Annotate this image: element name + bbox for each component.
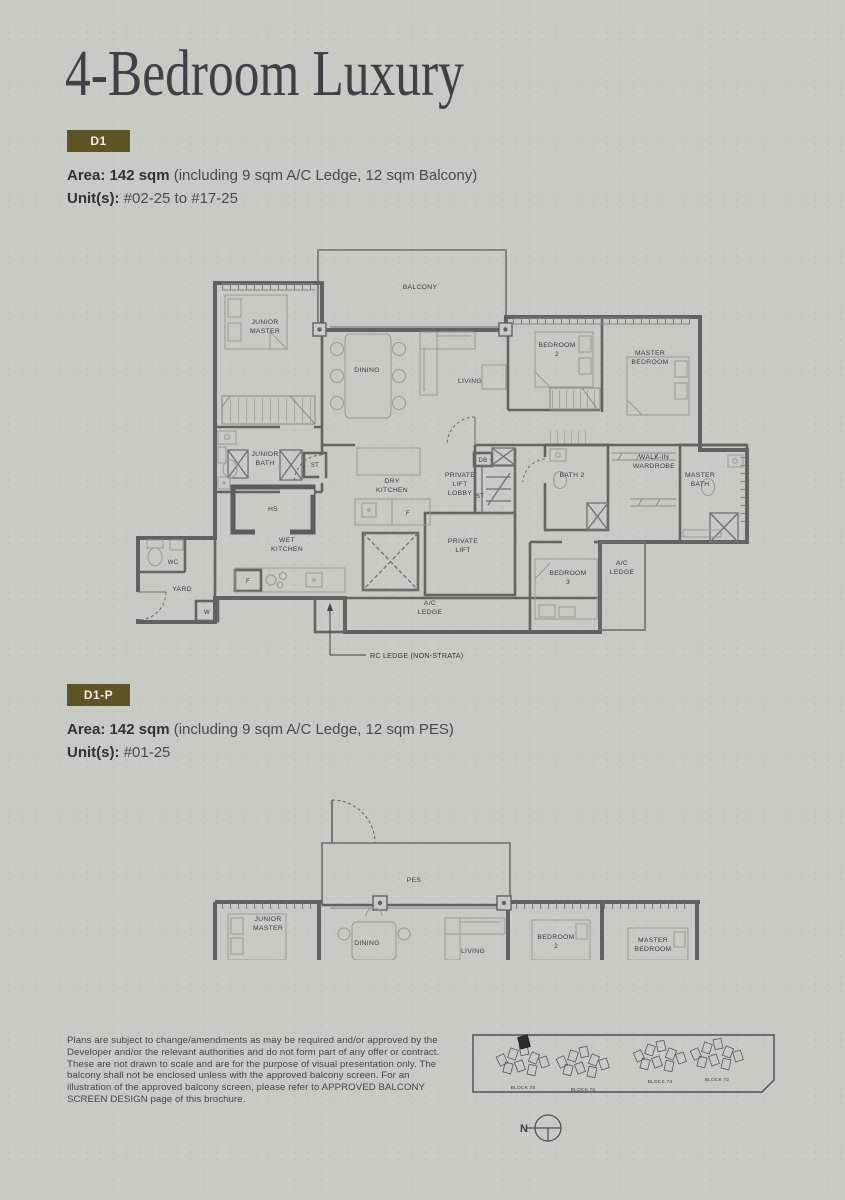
furniture bbox=[228, 908, 688, 960]
block-unit bbox=[587, 1066, 597, 1077]
block-unit bbox=[599, 1058, 610, 1070]
rc-ledge-label: RC LEDGE (NON-STRATA) bbox=[370, 651, 463, 660]
units-line: Unit(s): #01-25 bbox=[67, 741, 454, 764]
block-unit bbox=[721, 1058, 731, 1069]
room-label: PRIVATELIFTLOBBY bbox=[445, 472, 475, 497]
room-label: PRIVATELIFT bbox=[448, 538, 478, 554]
block-unit bbox=[697, 1056, 707, 1068]
block-unit bbox=[652, 1056, 663, 1068]
unit-meta-d1: Area: 142 sqm (including 9 sqm A/C Ledge… bbox=[67, 164, 477, 210]
block-cluster: BLOCK 74 bbox=[633, 1040, 686, 1085]
block-unit bbox=[709, 1054, 720, 1066]
room-label: ST bbox=[476, 494, 484, 500]
unit-meta-d1p: Area: 142 sqm (including 9 sqm A/C Ledge… bbox=[67, 718, 454, 764]
floorplan-d1: RC LEDGE (NON-STRATA) BALCONYJUNIORMASTE… bbox=[130, 237, 750, 667]
room-label: ST bbox=[311, 463, 319, 469]
block-unit bbox=[496, 1054, 507, 1066]
north-label: N bbox=[520, 1123, 528, 1135]
block-cluster: BLOCK 76 bbox=[556, 1046, 609, 1093]
block-unit bbox=[588, 1054, 599, 1066]
room-label: DINING bbox=[354, 940, 380, 947]
block-unit bbox=[503, 1062, 513, 1074]
brochure-page: 4-Bedroom Luxury D1 Area: 142 sqm (inclu… bbox=[0, 0, 845, 1200]
pes-gate bbox=[332, 800, 375, 843]
room-label: DRYKITCHEN bbox=[376, 478, 408, 494]
block-unit bbox=[563, 1064, 573, 1076]
block-unit bbox=[539, 1056, 550, 1068]
room-label: BEDROOM2 bbox=[538, 342, 575, 358]
door-arcs bbox=[138, 417, 545, 620]
floorplan-d1p: PESJUNIORMASTERDININGLIVINGBEDROOM2MASTE… bbox=[130, 790, 750, 960]
area-line: Area: 142 sqm (including 9 sqm A/C Ledge… bbox=[67, 718, 454, 741]
pes-outline bbox=[322, 843, 510, 905]
unit-type-badge-d1p: D1-P bbox=[67, 684, 130, 706]
room-label: LIVING bbox=[461, 948, 485, 955]
room-label: JUNIORMASTER bbox=[253, 916, 283, 932]
block-cluster: BLOCK 72 bbox=[690, 1038, 743, 1083]
room-label: DINING bbox=[354, 367, 380, 374]
room-label: JUNIORBATH bbox=[251, 451, 278, 467]
room-label: YARD bbox=[172, 586, 192, 593]
room-label: MASTERBEDROOM bbox=[634, 937, 671, 953]
block-label: BLOCK 74 bbox=[648, 1079, 673, 1085]
block-unit bbox=[515, 1060, 526, 1072]
outer-walls bbox=[215, 902, 700, 960]
room-label: A/CLEDGE bbox=[418, 600, 443, 616]
unit-type-badge-d1: D1 bbox=[67, 130, 130, 152]
north-indicator: N bbox=[512, 1108, 582, 1148]
block-unit bbox=[579, 1046, 589, 1057]
room-label: A/CLEDGE bbox=[610, 560, 635, 576]
block-unit bbox=[568, 1050, 579, 1062]
block-unit bbox=[528, 1052, 539, 1064]
block-unit bbox=[640, 1058, 650, 1070]
ac-ledge-column bbox=[600, 542, 645, 630]
room-label: WALK-INWARDROBE bbox=[633, 454, 675, 470]
block-unit bbox=[664, 1060, 674, 1071]
block-label: BLOCK 76 bbox=[571, 1087, 596, 1093]
block-unit bbox=[676, 1052, 687, 1064]
room-label: BEDROOM2 bbox=[537, 934, 574, 950]
room-label: LIVING bbox=[458, 378, 482, 385]
room-label: PES bbox=[407, 877, 422, 884]
room-label: BEDROOM3 bbox=[549, 570, 586, 586]
room-label: F bbox=[406, 511, 410, 517]
room-label: JUNIORMASTER bbox=[250, 319, 280, 335]
units-line: Unit(s): #02-25 to #17-25 bbox=[67, 187, 477, 210]
area-line: Area: 142 sqm (including 9 sqm A/C Ledge… bbox=[67, 164, 477, 187]
room-label: WETKITCHEN bbox=[271, 537, 303, 553]
block-cluster: BLOCK 78 bbox=[496, 1035, 549, 1091]
block-unit bbox=[722, 1046, 733, 1058]
block-unit bbox=[713, 1038, 723, 1049]
room-label: MASTERBATH bbox=[685, 472, 715, 488]
room-label: BALCONY bbox=[403, 284, 438, 291]
room-label: HS bbox=[268, 506, 278, 513]
room-label: W bbox=[204, 610, 210, 616]
room-label: WC bbox=[168, 560, 179, 566]
block-unit bbox=[556, 1056, 567, 1068]
block-unit bbox=[702, 1042, 713, 1054]
room-label: BATH 2 bbox=[559, 472, 584, 479]
block-unit bbox=[665, 1048, 676, 1060]
block-unit bbox=[656, 1040, 666, 1051]
block-unit bbox=[527, 1064, 537, 1075]
page-title: 4-Bedroom Luxury bbox=[65, 36, 464, 112]
site-boundary bbox=[473, 1035, 774, 1092]
block-unit bbox=[633, 1050, 644, 1062]
block-unit bbox=[690, 1048, 701, 1060]
block-label: BLOCK 78 bbox=[511, 1085, 536, 1091]
room-label: DB bbox=[479, 458, 488, 464]
block-unit bbox=[645, 1044, 656, 1056]
block-unit bbox=[733, 1050, 744, 1062]
disclaimer-text: Plans are subject to change/amendments a… bbox=[67, 1035, 451, 1106]
block-unit bbox=[508, 1048, 519, 1060]
block-unit bbox=[575, 1062, 586, 1074]
block-label: BLOCK 72 bbox=[705, 1077, 730, 1083]
room-label: MASTERBEDROOM bbox=[631, 350, 668, 366]
room-label: F bbox=[246, 579, 250, 585]
